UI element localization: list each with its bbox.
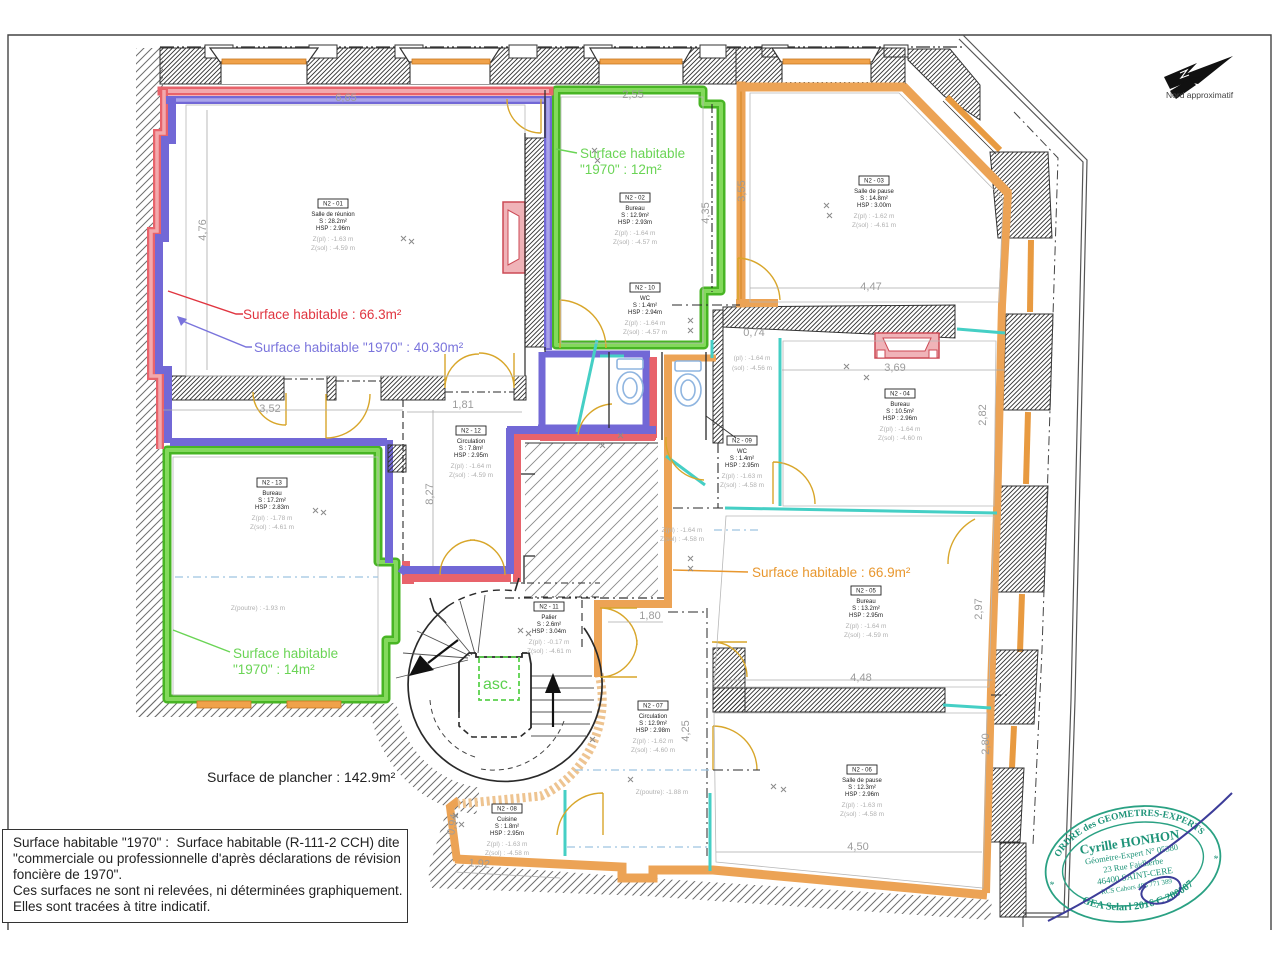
svg-text:HSP : 3.04m: HSP : 3.04m	[532, 629, 566, 635]
svg-text:HSP : 2.95m: HSP : 2.95m	[454, 453, 488, 459]
svg-text:Z(pl) : -0.17 m: Z(pl) : -0.17 m	[529, 639, 570, 646]
svg-text:1,81: 1,81	[452, 399, 473, 411]
svg-text:Bureau: Bureau	[890, 402, 909, 408]
svg-text:HSP : 2.94m: HSP : 2.94m	[628, 310, 662, 316]
svg-text:Circulation: Circulation	[639, 714, 667, 720]
svg-text:Z(pl) : -1.62 m: Z(pl) : -1.62 m	[854, 213, 895, 220]
svg-text:Z(pl) : -1.64 m: Z(pl) : -1.64 m	[625, 320, 666, 327]
svg-text:Z(pl) : -1.63 m: Z(pl) : -1.63 m	[842, 802, 883, 809]
svg-text:Palier: Palier	[541, 615, 556, 621]
svg-text:0,94: 0,94	[445, 813, 461, 836]
svg-text:HSP : 2.96m: HSP : 2.96m	[316, 226, 350, 232]
svg-text:S : 7.8m²: S : 7.8m²	[459, 446, 483, 452]
svg-text:N2 - 05: N2 - 05	[856, 589, 876, 595]
svg-text:HSP : 2.93m: HSP : 2.93m	[618, 220, 652, 226]
svg-text:S : 1.4m²: S : 1.4m²	[633, 303, 657, 309]
svg-text:Z(sol) : -4.58 m: Z(sol) : -4.58 m	[840, 811, 884, 818]
svg-text:asc.: asc.	[483, 676, 512, 693]
svg-text:Salle de réunion: Salle de réunion	[311, 212, 354, 218]
svg-text:S : 1.4m²: S : 1.4m²	[730, 456, 754, 462]
svg-text:S : 12.9m²: S : 12.9m²	[639, 721, 667, 727]
svg-text:N2 - 09: N2 - 09	[732, 439, 752, 445]
svg-text:Bureau: Bureau	[262, 491, 281, 497]
svg-text:N2 - 06: N2 - 06	[852, 768, 872, 774]
svg-text:*: *	[1049, 880, 1056, 892]
svg-text:Z(poutre): -1.88 m: Z(poutre): -1.88 m	[636, 789, 688, 796]
svg-text:Surface habitable "1970" : 40.: Surface habitable "1970" : 40.30m²	[254, 340, 464, 355]
svg-text:4,50: 4,50	[847, 841, 868, 853]
svg-text:HSP : 2.98m: HSP : 2.98m	[636, 728, 670, 734]
svg-text:"1970" : 14m²: "1970" : 14m²	[233, 662, 315, 677]
svg-text:Z(sol) : -4.58 m: Z(sol) : -4.58 m	[660, 536, 704, 543]
svg-text:(sol) : -4.56 m: (sol) : -4.56 m	[732, 365, 772, 372]
svg-text:2,55: 2,55	[622, 89, 643, 101]
svg-text:Z(pl) : -1.64 m: Z(pl) : -1.64 m	[662, 527, 703, 534]
svg-text:HSP : 2.95m: HSP : 2.95m	[490, 831, 524, 837]
svg-text:Z(pl) : -1.63 m: Z(pl) : -1.63 m	[722, 473, 763, 480]
svg-text:Surface habitable : 66.9m²: Surface habitable : 66.9m²	[752, 565, 911, 580]
svg-text:N2 - 04: N2 - 04	[890, 392, 910, 398]
svg-text:HSP : 3.00m: HSP : 3.00m	[857, 203, 891, 209]
svg-text:Surface habitable : 66.3m²: Surface habitable : 66.3m²	[243, 307, 402, 322]
svg-text:S : 2.6m²: S : 2.6m²	[537, 622, 561, 628]
svg-text:4,47: 4,47	[860, 281, 881, 293]
svg-text:4,25: 4,25	[680, 720, 692, 741]
svg-text:Z(pl) : -1.62 m: Z(pl) : -1.62 m	[633, 738, 674, 745]
svg-text:Z(pl) : -1.64 m: Z(pl) : -1.64 m	[615, 230, 656, 237]
svg-text:Bureau: Bureau	[625, 206, 644, 212]
svg-text:4,35: 4,35	[700, 202, 712, 223]
svg-text:S : 17.2m²: S : 17.2m²	[258, 498, 286, 504]
svg-text:HSP : 2.83m: HSP : 2.83m	[255, 505, 289, 511]
svg-text:WC: WC	[737, 449, 748, 455]
svg-text:Z(sol) : -4.59 m: Z(sol) : -4.59 m	[449, 472, 493, 479]
svg-text:N2 - 12: N2 - 12	[461, 429, 481, 435]
svg-text:Z(pl) : -1.78 m: Z(pl) : -1.78 m	[252, 515, 293, 522]
svg-text:S : 14.8m²: S : 14.8m²	[860, 196, 888, 202]
svg-text:1,80: 1,80	[639, 610, 660, 622]
svg-text:N2 - 08: N2 - 08	[497, 807, 517, 813]
svg-text:Z(pl) : -1.63 m: Z(pl) : -1.63 m	[313, 236, 354, 243]
svg-text:Z(sol) : -4.61 m: Z(sol) : -4.61 m	[527, 648, 571, 655]
svg-text:N2 - 11: N2 - 11	[539, 605, 559, 611]
svg-text:N2 - 10: N2 - 10	[635, 286, 655, 292]
svg-text:HSP : 2.96m: HSP : 2.96m	[883, 416, 917, 422]
svg-text:2,97: 2,97	[973, 598, 985, 619]
svg-text:Surface habitable: Surface habitable	[233, 646, 338, 661]
svg-text:Salle de pause: Salle de pause	[842, 778, 882, 784]
svg-text:Z(sol) : -4.60 m: Z(sol) : -4.60 m	[878, 435, 922, 442]
svg-text:2,80: 2,80	[980, 733, 992, 754]
svg-text:Z(sol) : -4.59 m: Z(sol) : -4.59 m	[844, 632, 888, 639]
svg-text:(pl) : -1.64 m: (pl) : -1.64 m	[734, 355, 771, 362]
svg-text:3,55: 3,55	[736, 180, 748, 201]
svg-text:Z(sol) : -4.57 m: Z(sol) : -4.57 m	[613, 239, 657, 246]
svg-text:Z(sol) : -4.60 m: Z(sol) : -4.60 m	[631, 747, 675, 754]
svg-text:Z(pl) : -1.63 m: Z(pl) : -1.63 m	[487, 841, 528, 848]
svg-text:WC: WC	[640, 296, 651, 302]
svg-text:N2 - 02: N2 - 02	[625, 196, 645, 202]
svg-text:HSP : 2.96m: HSP : 2.96m	[845, 792, 879, 798]
svg-text:3,69: 3,69	[884, 362, 905, 374]
svg-text:S : 12.9m²: S : 12.9m²	[621, 213, 649, 219]
svg-text:6,65: 6,65	[335, 92, 356, 104]
svg-text:Z(sol) : -4.61 m: Z(sol) : -4.61 m	[250, 524, 294, 531]
svg-text:Z(pl) : -1.64 m: Z(pl) : -1.64 m	[880, 426, 921, 433]
svg-text:S : 1.8m²: S : 1.8m²	[495, 824, 519, 830]
svg-text:N2 - 01: N2 - 01	[323, 202, 343, 208]
svg-text:HSP : 2.95m: HSP : 2.95m	[725, 463, 759, 469]
svg-text:Circulation: Circulation	[457, 439, 485, 445]
svg-text:Z(sol) : -4.57 m: Z(sol) : -4.57 m	[623, 329, 667, 336]
svg-text:S : 13.2m²: S : 13.2m²	[852, 606, 880, 612]
svg-text:0,74: 0,74	[743, 327, 764, 339]
svg-text:Cuisine: Cuisine	[497, 817, 518, 823]
svg-text:Z(sol) : -4.59 m: Z(sol) : -4.59 m	[311, 245, 355, 252]
svg-text:N2 - 03: N2 - 03	[864, 179, 884, 185]
svg-text:Z(pl) : -1.64 m: Z(pl) : -1.64 m	[846, 623, 887, 630]
svg-text:Bureau: Bureau	[856, 599, 875, 605]
svg-text:Z(poutre) : -1.93 m: Z(poutre) : -1.93 m	[231, 605, 285, 612]
svg-text:"1970" : 12m²: "1970" : 12m²	[580, 162, 662, 177]
svg-text:Nord approximatif: Nord approximatif	[1166, 90, 1234, 100]
svg-text:Z(sol) : -4.58 m: Z(sol) : -4.58 m	[485, 850, 529, 857]
svg-text:3,52: 3,52	[259, 403, 280, 415]
svg-text:Salle de pause: Salle de pause	[854, 189, 894, 195]
svg-text:Z(sol) : -4.61 m: Z(sol) : -4.61 m	[852, 222, 896, 229]
svg-text:2,82: 2,82	[977, 404, 989, 425]
svg-text:N2 - 13: N2 - 13	[262, 481, 282, 487]
svg-text:S : 10.5m²: S : 10.5m²	[886, 409, 914, 415]
svg-text:S : 28.2m²: S : 28.2m²	[319, 219, 347, 225]
svg-text:Z(sol) : -4.58 m: Z(sol) : -4.58 m	[720, 482, 764, 489]
svg-text:8,27: 8,27	[424, 483, 436, 504]
svg-text:Z(pl) : -1.64 m: Z(pl) : -1.64 m	[451, 463, 492, 470]
svg-text:4,48: 4,48	[850, 672, 871, 684]
svg-text:*: *	[1213, 854, 1220, 866]
svg-text:N2 - 07: N2 - 07	[643, 704, 663, 710]
svg-text:1,92: 1,92	[468, 857, 490, 870]
svg-text:4,76: 4,76	[197, 219, 209, 240]
svg-text:HSP : 2.95m: HSP : 2.95m	[849, 613, 883, 619]
svg-text:S : 12.3m²: S : 12.3m²	[848, 785, 876, 791]
